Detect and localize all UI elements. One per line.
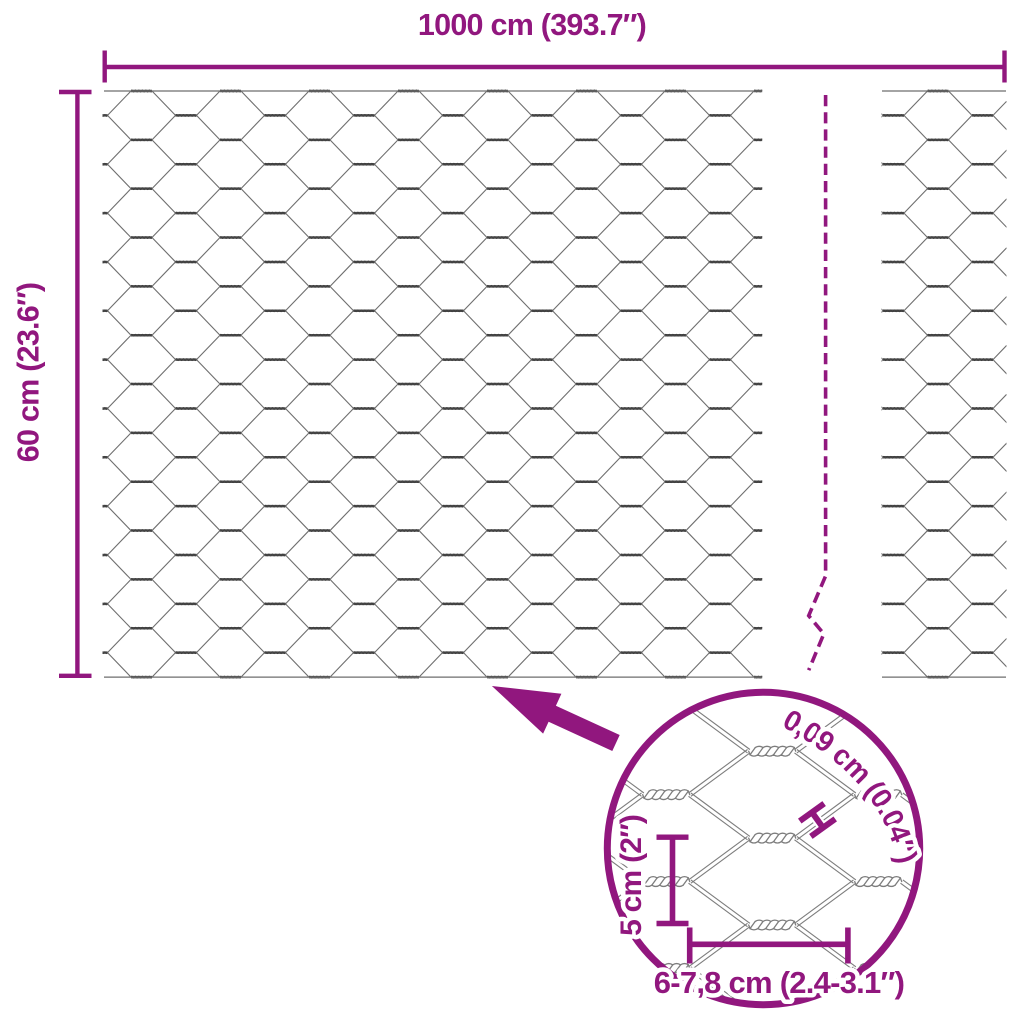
svg-text:1000 cm (393.7″): 1000 cm (393.7″) [418, 8, 646, 42]
svg-text:5 cm (2″): 5 cm (2″) [615, 815, 648, 936]
svg-text:60 cm (23.6″): 60 cm (23.6″) [12, 283, 46, 463]
svg-text:6-7,8 cm (2.4-3.1″): 6-7,8 cm (2.4-3.1″) [654, 965, 904, 1000]
